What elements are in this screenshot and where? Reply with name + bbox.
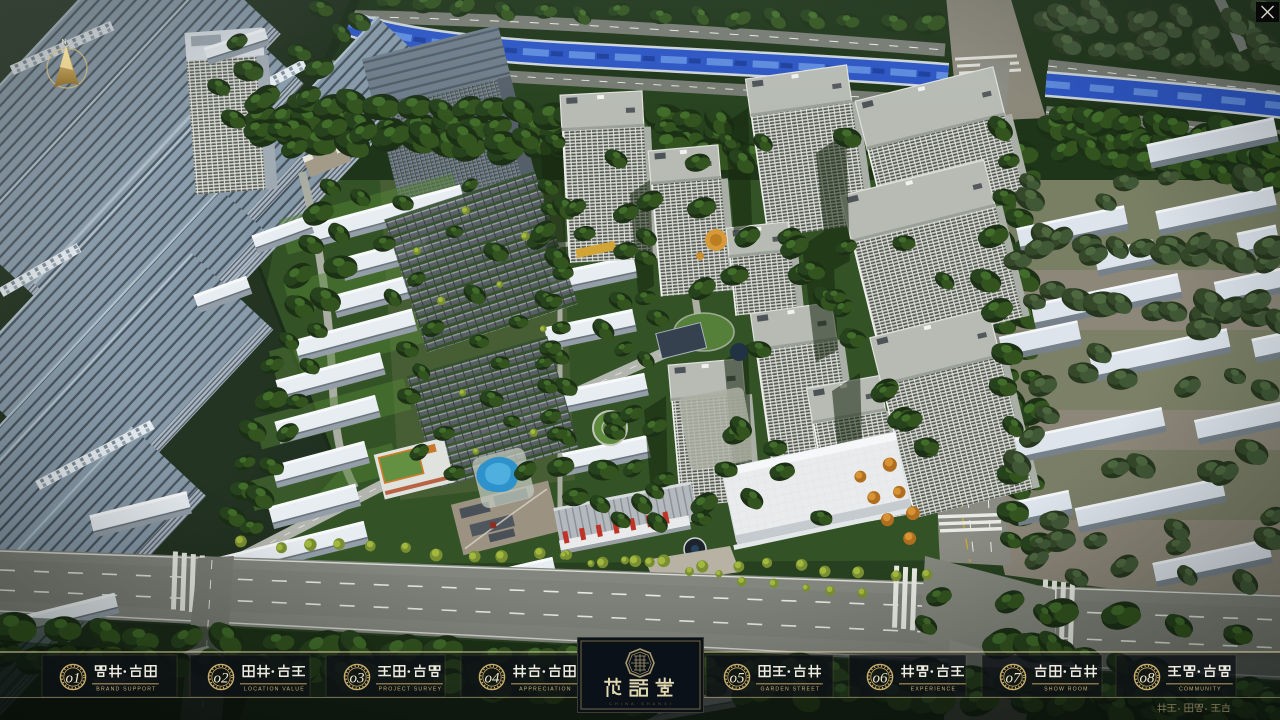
svg-text:EXPERIENCE: EXPERIENCE: [911, 687, 956, 693]
svg-text:APPRECIATION: APPRECIATION: [519, 687, 572, 693]
svg-text:SHOW ROOM: SHOW ROOM: [1044, 687, 1089, 693]
svg-text:C H I N A · S H A N X I: C H I N A · S H A N X I: [609, 701, 672, 706]
svg-text:o6: o6: [873, 671, 889, 687]
svg-text:PROJECT SURVEY: PROJECT SURVEY: [379, 687, 443, 693]
svg-text:o3: o3: [350, 671, 365, 687]
svg-text:N: N: [61, 39, 66, 46]
svg-text:o5: o5: [730, 671, 746, 687]
svg-text:COMMUNITY: COMMUNITY: [1179, 687, 1222, 693]
svg-text:o7: o7: [1006, 671, 1023, 687]
svg-text:o1: o1: [66, 671, 81, 687]
svg-text:BRAND SUPPORT: BRAND SUPPORT: [96, 687, 156, 693]
svg-text:LOCATION VALUE: LOCATION VALUE: [244, 687, 305, 693]
svg-text:o2: o2: [214, 671, 230, 687]
svg-text:o8: o8: [1140, 671, 1156, 687]
svg-text:GARDEN STREET: GARDEN STREET: [761, 687, 821, 693]
svg-text:o4: o4: [485, 671, 501, 687]
